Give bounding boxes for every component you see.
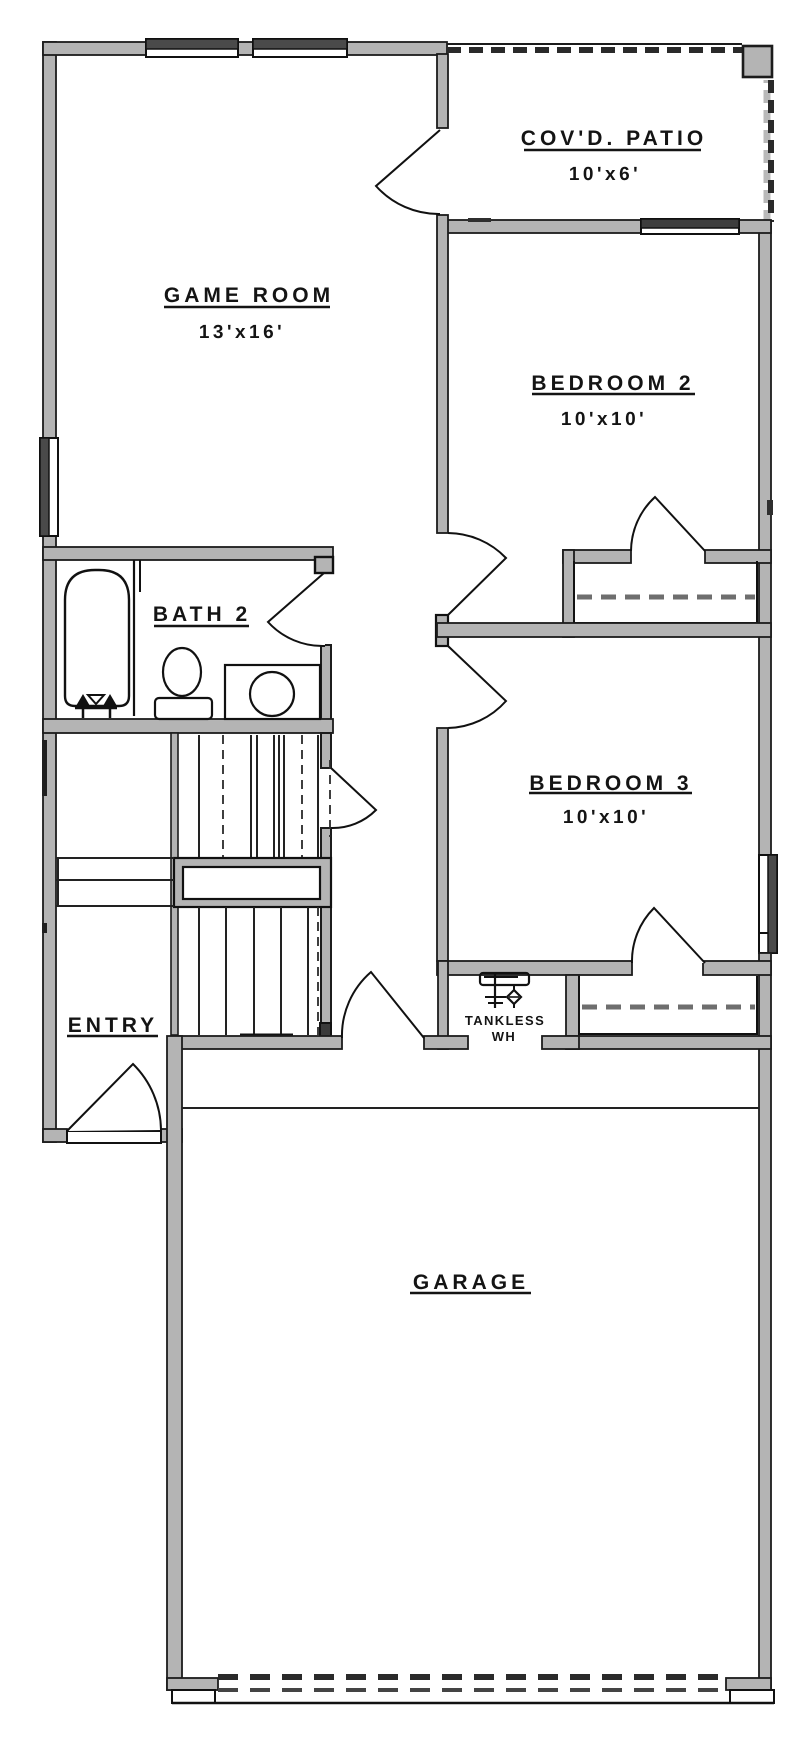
svg-text:BATH 2: BATH 2 (153, 603, 251, 626)
svg-text:TANKLESS: TANKLESS (465, 1013, 545, 1028)
svg-text:GAME ROOM: GAME ROOM (164, 284, 334, 307)
svg-text:13'x16': 13'x16' (199, 322, 285, 343)
svg-text:COV'D. PATIO: COV'D. PATIO (521, 127, 707, 150)
svg-text:BEDROOM 3: BEDROOM 3 (529, 772, 692, 795)
svg-text:WH: WH (492, 1029, 516, 1044)
svg-text:10'x10': 10'x10' (561, 409, 647, 430)
svg-text:GARAGE: GARAGE (413, 1271, 529, 1294)
svg-text:ENTRY: ENTRY (68, 1014, 158, 1037)
svg-text:10'x10': 10'x10' (563, 807, 649, 828)
svg-text:10'x6': 10'x6' (569, 164, 641, 185)
svg-text:BEDROOM 2: BEDROOM 2 (531, 372, 694, 395)
